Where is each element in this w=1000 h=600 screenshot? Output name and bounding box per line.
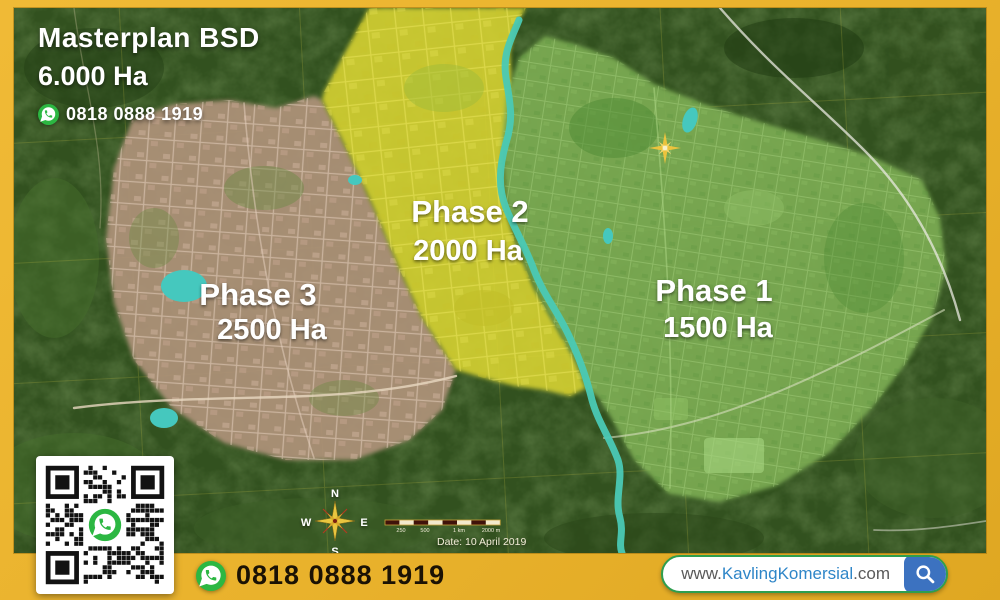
phase2-label: Phase 2 [411, 194, 528, 229]
website-name: KavlingKomersial [722, 564, 853, 583]
website-suffix: .com [853, 564, 890, 583]
area-subtitle: 6.000 Ha [38, 61, 260, 92]
scale-label-3: 1 km [453, 528, 465, 534]
search-button[interactable] [904, 555, 946, 593]
header-whatsapp-contact[interactable]: 0818 0888 1919 [38, 104, 260, 125]
phase3-area: 2500 Ha [217, 314, 328, 346]
compass-s: S [331, 546, 338, 553]
search-icon [914, 563, 936, 585]
scale-label-4: 2000 m [482, 528, 501, 534]
whatsapp-icon [196, 561, 226, 591]
whatsapp-icon [38, 104, 59, 125]
footer-whatsapp-contact[interactable]: 0818 0888 1919 [196, 560, 445, 591]
scale-label-1: 250 [396, 528, 405, 534]
title-block: Masterplan BSD 6.000 Ha 0818 0888 1919 [38, 20, 260, 125]
phase3-label: Phase 3 [199, 277, 316, 312]
website-link[interactable]: www.KavlingKomersial.com [661, 555, 948, 593]
masterplan-poster: { "header": { "title": "Masterplan BSD",… [0, 0, 1000, 600]
phase2-area: 2000 Ha [413, 235, 524, 267]
qr-pattern [40, 460, 170, 590]
website-url: www.KavlingKomersial.com [663, 564, 904, 584]
header-phone-number: 0818 0888 1919 [66, 104, 203, 125]
website-prefix: www. [681, 564, 722, 583]
phase1-label: Phase 1 [655, 273, 772, 308]
scale-label-2: 500 [420, 528, 429, 534]
compass-e: E [360, 517, 367, 529]
qr-code [36, 456, 174, 594]
phase1-area: 1500 Ha [663, 312, 774, 344]
compass-n: N [331, 488, 339, 500]
compass-w: W [301, 517, 312, 529]
map-date: Date: 10 April 2019 [437, 536, 526, 548]
footer-phone-number: 0818 0888 1919 [236, 560, 445, 591]
page-title: Masterplan BSD [38, 20, 260, 55]
